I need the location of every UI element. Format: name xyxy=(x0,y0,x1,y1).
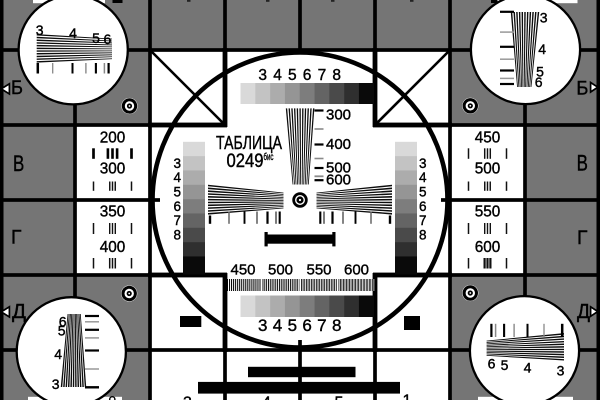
svg-text:6: 6 xyxy=(303,67,312,84)
svg-text:1: 1 xyxy=(403,393,412,400)
svg-text:Г: Г xyxy=(577,227,588,249)
svg-text:7: 7 xyxy=(173,213,181,228)
svg-text:В: В xyxy=(577,151,588,176)
svg-text:3: 3 xyxy=(258,67,267,84)
svg-text:Д: Д xyxy=(12,301,26,323)
svg-text:7: 7 xyxy=(318,67,327,84)
svg-text:4: 4 xyxy=(173,170,181,185)
svg-text:6: 6 xyxy=(535,74,543,90)
svg-text:5: 5 xyxy=(419,185,427,200)
svg-text:4: 4 xyxy=(69,25,77,41)
svg-text:Б: Б xyxy=(576,78,588,100)
svg-text:Д: Д xyxy=(577,301,590,323)
svg-text:300: 300 xyxy=(326,107,351,124)
svg-text:6: 6 xyxy=(173,199,181,214)
svg-text:3: 3 xyxy=(557,363,565,379)
svg-text:5: 5 xyxy=(58,323,66,339)
svg-text:550: 550 xyxy=(306,262,331,279)
svg-text:4: 4 xyxy=(538,41,546,57)
svg-text:600: 600 xyxy=(326,172,351,189)
svg-text:3: 3 xyxy=(36,22,44,38)
svg-text:Г: Г xyxy=(11,227,22,249)
svg-text:6: 6 xyxy=(419,199,427,214)
svg-text:600: 600 xyxy=(475,239,501,256)
svg-text:6: 6 xyxy=(104,31,112,47)
svg-text:200: 200 xyxy=(100,130,126,147)
svg-text:450: 450 xyxy=(475,130,501,147)
svg-text:550: 550 xyxy=(475,204,501,221)
svg-text:300: 300 xyxy=(100,161,126,178)
svg-text:3: 3 xyxy=(52,376,60,392)
svg-text:5: 5 xyxy=(92,30,100,46)
svg-text:4: 4 xyxy=(419,170,427,185)
svg-text:Б: Б xyxy=(11,77,23,99)
svg-text:4: 4 xyxy=(273,316,282,335)
svg-text:500: 500 xyxy=(475,161,501,178)
svg-text:5: 5 xyxy=(288,67,297,84)
svg-text:3: 3 xyxy=(183,395,192,400)
svg-text:3: 3 xyxy=(258,316,267,335)
svg-text:8: 8 xyxy=(332,67,341,84)
svg-text:8: 8 xyxy=(173,228,181,243)
svg-text:4: 4 xyxy=(273,67,282,84)
svg-text:8: 8 xyxy=(419,228,427,243)
svg-text:5: 5 xyxy=(288,316,297,335)
svg-text:В: В xyxy=(13,151,24,176)
svg-text:5: 5 xyxy=(173,185,181,200)
svg-text:3: 3 xyxy=(173,156,181,171)
svg-text:6: 6 xyxy=(302,316,311,335)
svg-text:350: 350 xyxy=(100,204,126,221)
svg-text:7: 7 xyxy=(419,213,427,228)
svg-text:500: 500 xyxy=(268,262,293,279)
svg-text:ТАБЛИЦА: ТАБЛИЦА xyxy=(216,133,282,153)
svg-text:бис: бис xyxy=(264,151,274,163)
svg-text:0249: 0249 xyxy=(227,151,264,172)
svg-text:4: 4 xyxy=(54,346,62,362)
svg-text:6: 6 xyxy=(488,355,496,371)
svg-text:8: 8 xyxy=(332,316,341,335)
svg-text:450: 450 xyxy=(230,262,255,279)
svg-text:600: 600 xyxy=(344,262,369,279)
svg-text:5: 5 xyxy=(501,357,509,373)
svg-text:3: 3 xyxy=(540,10,548,26)
svg-text:3: 3 xyxy=(419,156,427,171)
svg-text:4: 4 xyxy=(524,360,532,376)
svg-text:400: 400 xyxy=(326,136,351,153)
svg-text:7: 7 xyxy=(317,316,326,335)
svg-text:4: 4 xyxy=(262,395,271,400)
svg-text:400: 400 xyxy=(100,239,126,256)
svg-text:5: 5 xyxy=(335,395,344,400)
